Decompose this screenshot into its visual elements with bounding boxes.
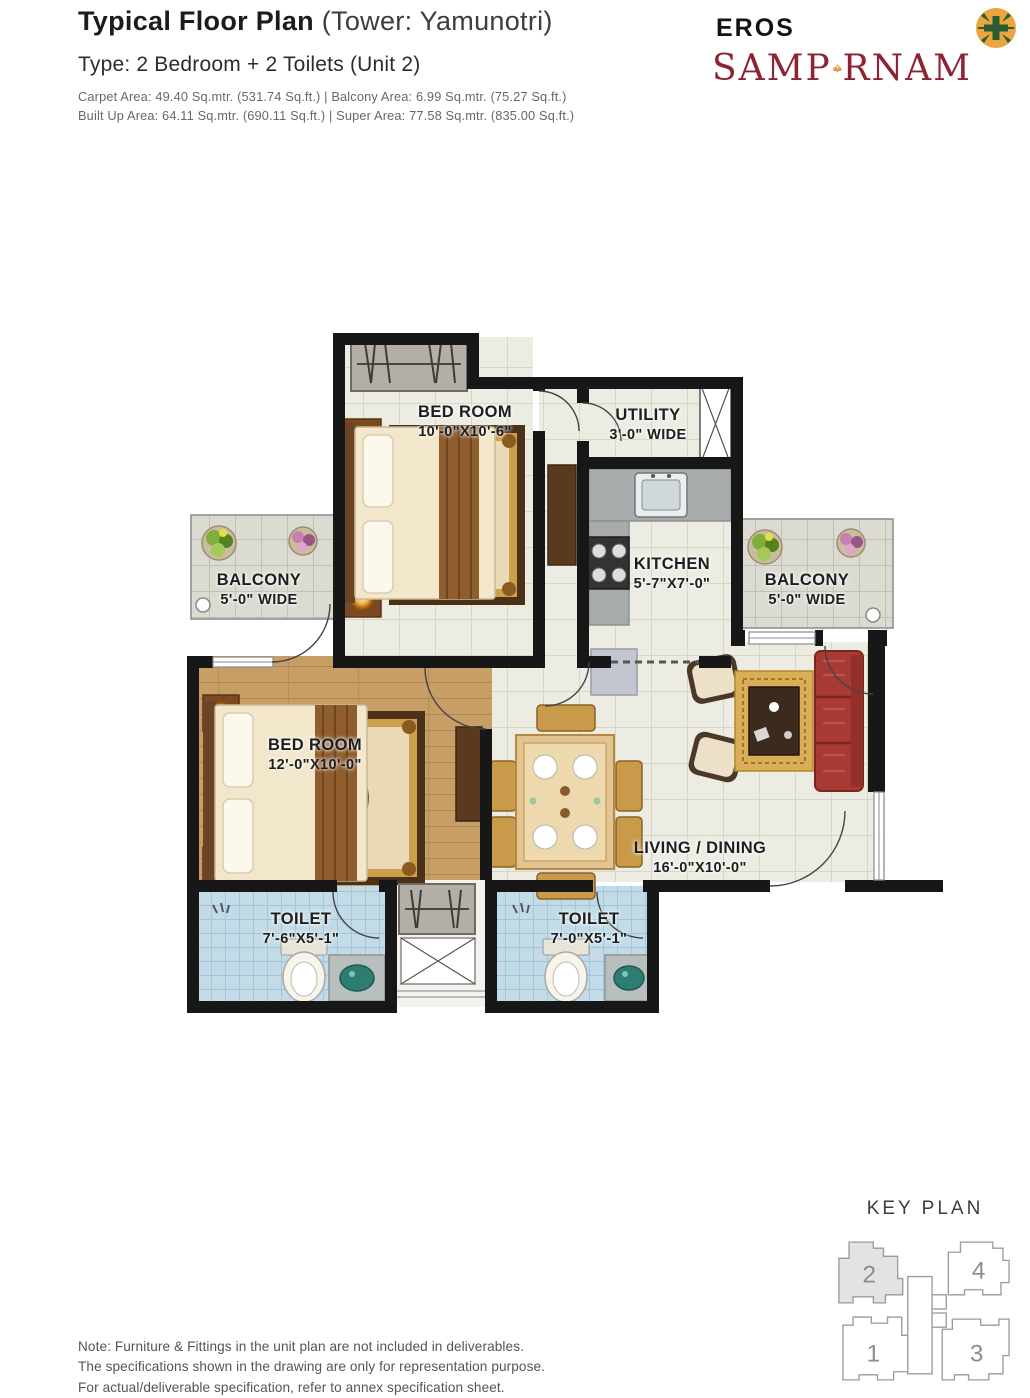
- brand-logo: EROS SAMP RNAM: [712, 14, 972, 87]
- brand-name-sampoornam: SAMP RNAM: [712, 41, 972, 87]
- note-line-3: For actual/deliverable specification, re…: [78, 1378, 545, 1398]
- room-label-living-dining: LIVING / DINING 16'-0"X10'-0": [634, 838, 767, 878]
- tower-number: 4: [972, 1258, 986, 1285]
- wardrobe-icon: [399, 884, 475, 934]
- room-label-utility: UTILITY 3'-0" WIDE: [609, 405, 686, 445]
- service-shaft: [700, 383, 731, 465]
- key-plan-map: 2 4 1 3: [828, 1232, 1022, 1390]
- area-line-2: Built Up Area: 64.11 Sq.mtr. (690.11 Sq.…: [78, 106, 718, 125]
- room-label-balcony-left: BALCONY 5'-0" WIDE: [217, 570, 301, 610]
- room-label-kitchen: KITCHEN 5'-7"X7'-0": [634, 554, 711, 594]
- bed-icon: [343, 419, 495, 617]
- unit-type: Type: 2 Bedroom + 2 Toilets (Unit 2): [78, 53, 718, 77]
- key-plan-corridor: [908, 1277, 932, 1374]
- room-label-bedroom-2: BED ROOM 12'-0"X10'-0": [268, 735, 362, 775]
- note-line-1: Note: Furniture & Fittings in the unit p…: [78, 1337, 545, 1357]
- brand-name-eros: EROS: [716, 14, 972, 43]
- tower-number: 1: [867, 1341, 881, 1368]
- room-label-bedroom-1: BED ROOM 10'-0"X10'-6": [418, 402, 512, 442]
- wardrobe-icon: [351, 337, 467, 391]
- side-table-icon: [591, 649, 637, 695]
- key-plan-title: KEY PLAN: [828, 1198, 1022, 1220]
- bed-icon: [203, 695, 367, 883]
- lotus-flame-icon: [833, 41, 842, 95]
- area-line-1: Carpet Area: 49.40 Sq.mtr. (531.74 Sq.ft…: [78, 87, 718, 106]
- brand-name-left: SAMP: [712, 51, 832, 87]
- tv-console-icon: [548, 465, 576, 565]
- tower-number: 3: [970, 1341, 984, 1368]
- tower-number: 2: [863, 1262, 877, 1289]
- page-header: Typical Floor Plan (Tower: Yamunotri) Ty…: [78, 6, 718, 125]
- key-plan: KEY PLAN 2 4 1 3: [828, 1198, 1022, 1395]
- page-title: Typical Floor Plan (Tower: Yamunotri): [78, 6, 718, 37]
- note: Note: Furniture & Fittings in the unit p…: [78, 1337, 545, 1398]
- room-label-toilet-1: TOILET 7'-6"X5'-1": [263, 909, 340, 949]
- brand-name-right: RNAM: [843, 51, 972, 87]
- page-title-bold: Typical Floor Plan: [78, 6, 314, 36]
- room-label-toilet-2: TOILET 7'-0"X5'-1": [551, 909, 628, 949]
- page-title-tower: (Tower: Yamunotri): [314, 6, 553, 36]
- tv-console-icon: [456, 727, 482, 821]
- floor-plan: BED ROOM 10'-0"X10'-6" UTILITY 3'-0" WID…: [183, 331, 953, 1021]
- area-details: Carpet Area: 49.40 Sq.mtr. (531.74 Sq.ft…: [78, 87, 718, 125]
- note-line-2: The specifications shown in the drawing …: [78, 1357, 545, 1377]
- brand-emblem-icon: [974, 6, 1018, 50]
- room-label-balcony-right: BALCONY 5'-0" WIDE: [765, 570, 849, 610]
